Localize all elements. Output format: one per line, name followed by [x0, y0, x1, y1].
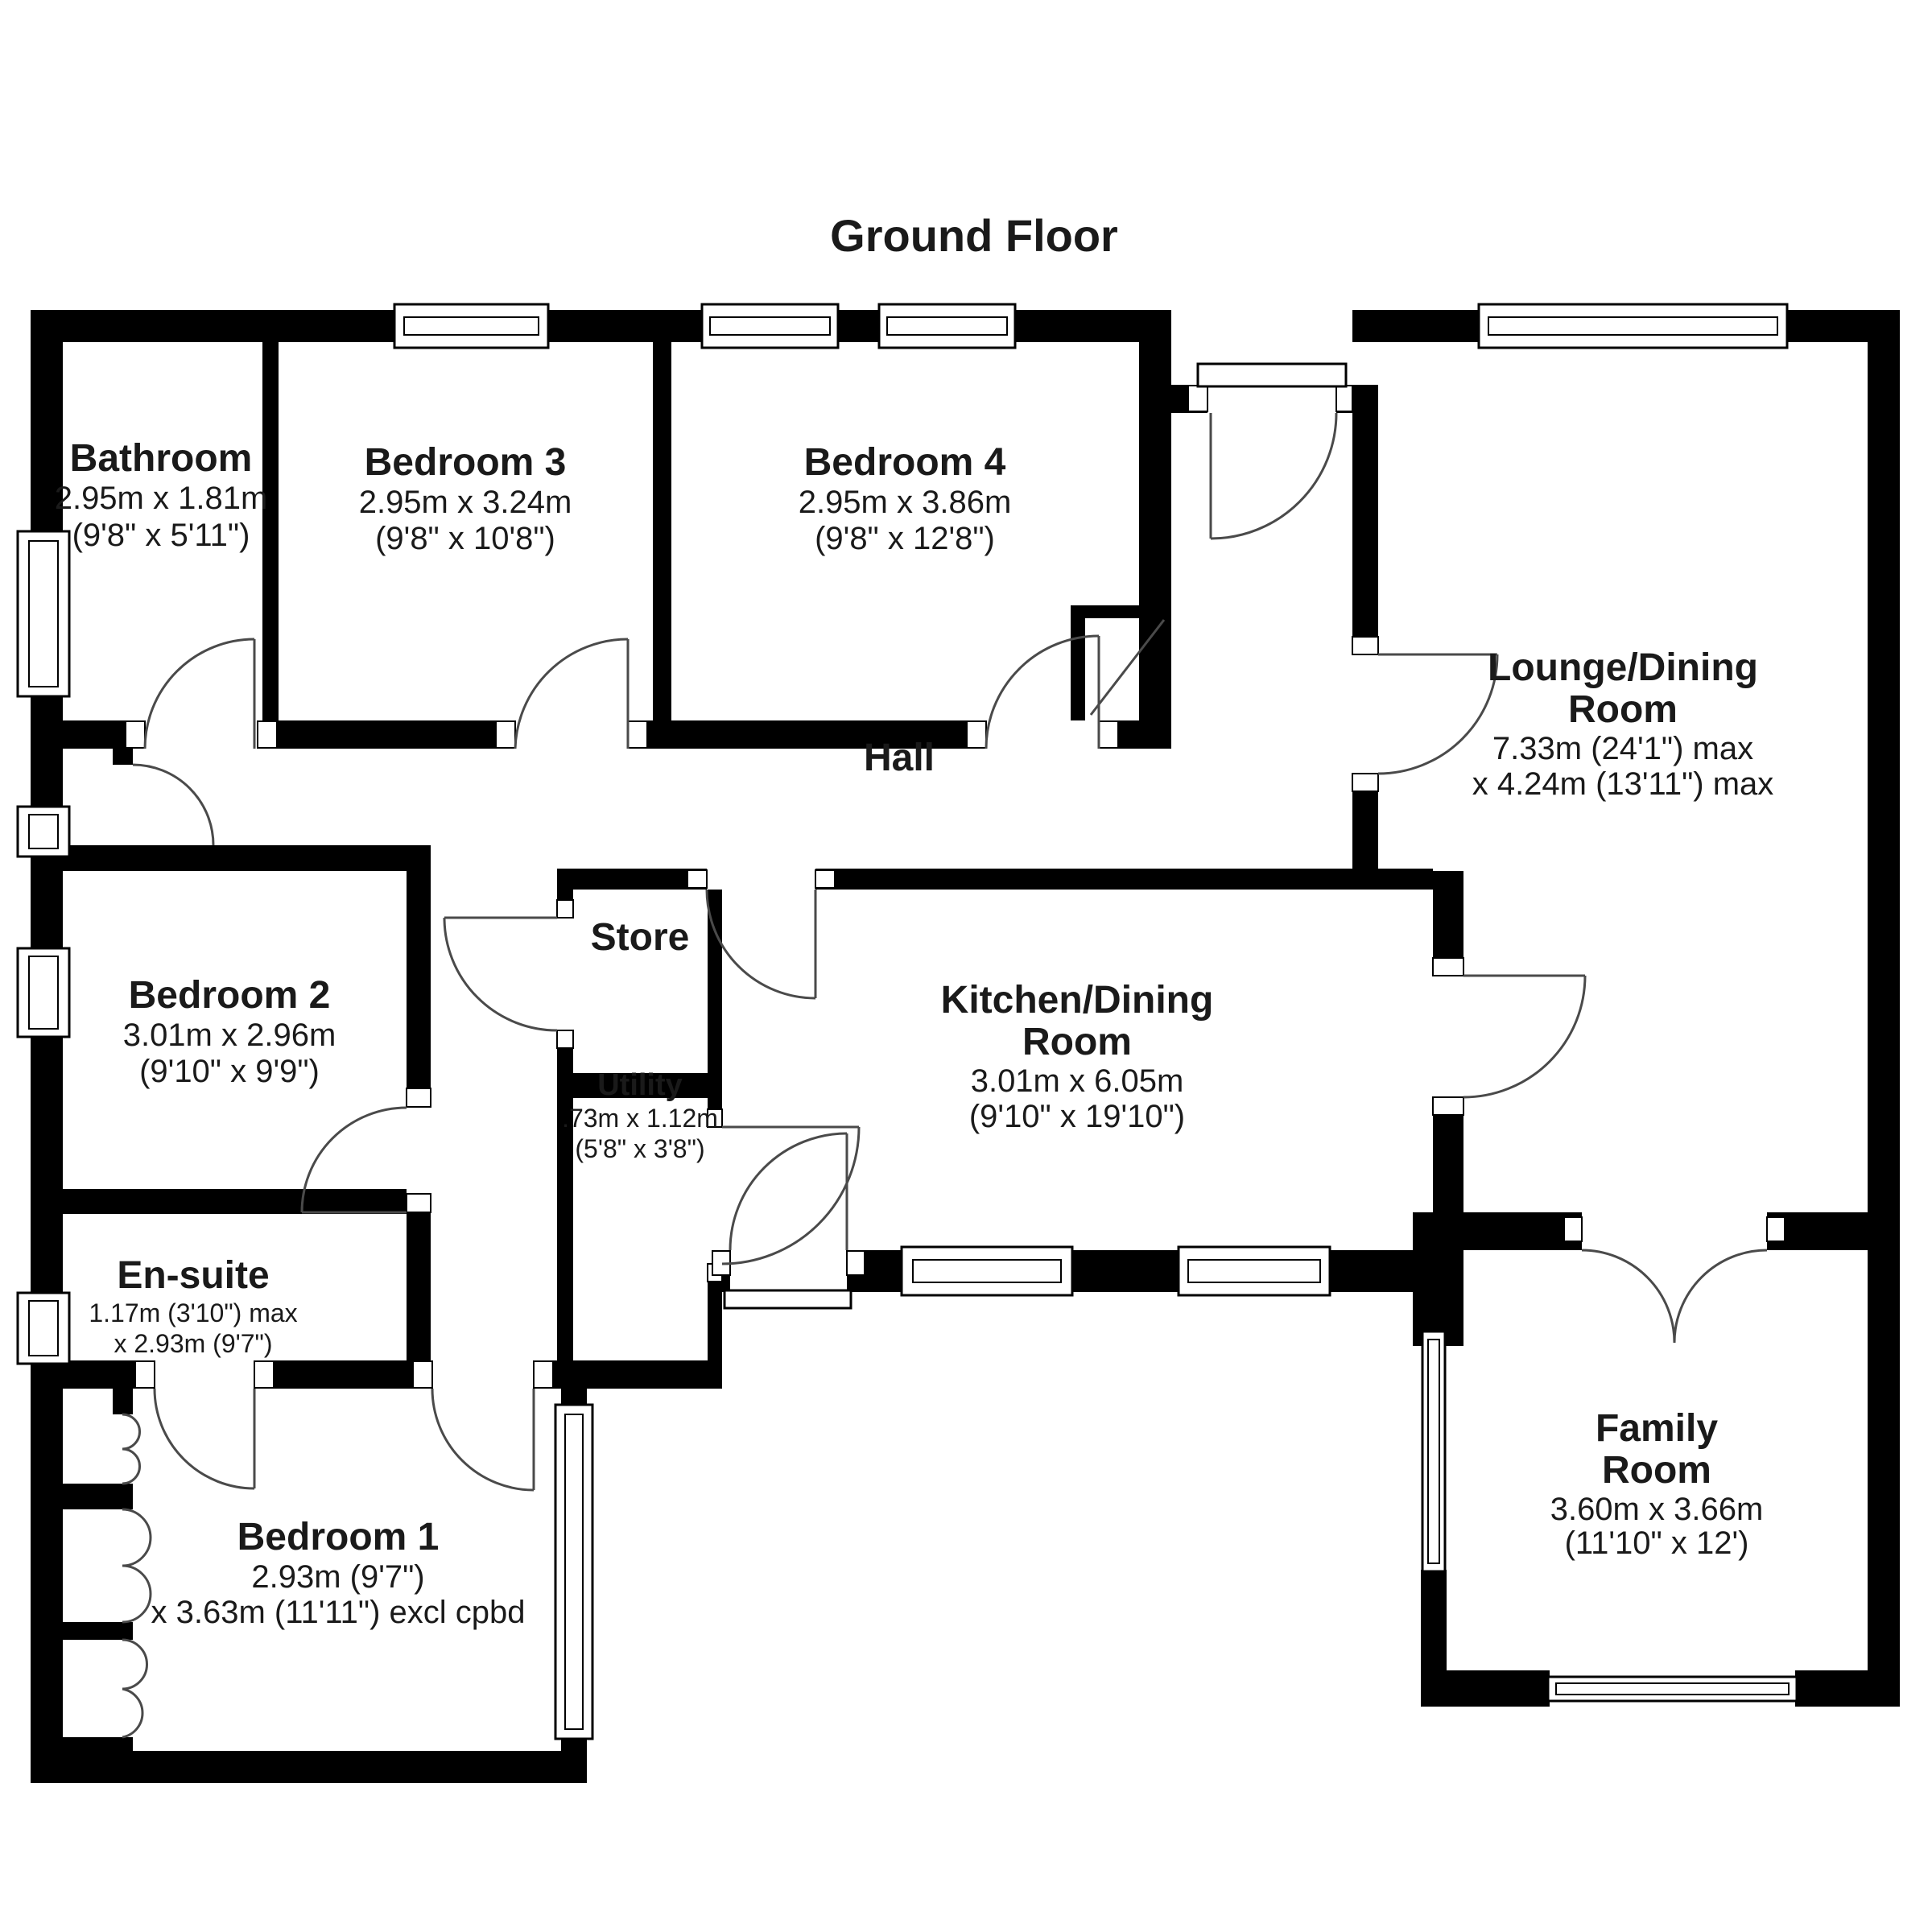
bedroom1-name: Bedroom 1 [237, 1516, 440, 1558]
store-label: Store [591, 916, 690, 959]
family-room-side-window [1422, 1331, 1445, 1571]
bedroom4-window-1 [702, 304, 838, 348]
bedroom2-dims-2: (9'10" x 9'9") [139, 1054, 320, 1089]
kitchen-window-2 [1179, 1247, 1330, 1295]
bathroom-dims-2: (9'8" x 5'11") [72, 518, 250, 553]
bedroom4-name: Bedroom 4 [804, 441, 1006, 484]
bathroom-label: Bathroom 2.95m x 1.81m (9'8" x 5'11") [55, 437, 268, 553]
family-dims-2: (11'10" x 12') [1565, 1525, 1749, 1561]
bedroom4-dims-2: (9'8" x 12'8") [815, 521, 995, 556]
bedroom4-label: Bedroom 4 2.95m x 3.86m (9'8" x 12'8") [799, 441, 1012, 556]
bathroom-dims-1: 2.95m x 1.81m [55, 481, 268, 516]
ensuite-dims-1: 1.17m (3'10") max [89, 1298, 297, 1327]
bedroom3-dims-2: (9'8" x 10'8") [375, 521, 555, 556]
front-door [1211, 413, 1336, 539]
bathroom-name: Bathroom [70, 437, 253, 480]
ensuite-name: En-suite [117, 1254, 269, 1297]
utility-name: Utility [597, 1068, 683, 1102]
kitchen-name-1: Kitchen/Dining [941, 979, 1214, 1022]
kitchen-lounge-door [1463, 976, 1585, 1097]
bedroom1-dims-1: 2.93m (9'7") [251, 1559, 424, 1595]
bedroom2-dims-1: 3.01m x 2.96m [123, 1018, 336, 1053]
family-room-bottom-window [1548, 1677, 1797, 1701]
labels: Ground Floor Bathroom 2.95m x 1.81m (9'8… [55, 210, 1774, 1630]
bedroom4-window-2 [879, 304, 1015, 348]
kitchen-hall-door [707, 890, 815, 998]
lounge-door [1378, 654, 1497, 774]
hall-label: Hall [864, 737, 935, 779]
bathroom-window [18, 531, 69, 696]
bedroom2-window [18, 948, 69, 1037]
hall-cupboard-door [133, 765, 213, 845]
kitchen-dims-1: 3.01m x 6.05m [971, 1063, 1184, 1099]
bathroom-door [145, 639, 254, 749]
ensuite-window [18, 1293, 69, 1364]
family-room-label: Family Room 3.60m x 3.66m (11'10" x 12') [1550, 1407, 1764, 1561]
lounge-dims-1: 7.33m (24'1") max [1492, 731, 1753, 766]
lounge-name-1: Lounge/Dining [1488, 646, 1758, 689]
lounge-window [1479, 304, 1787, 348]
family-name-1: Family [1596, 1407, 1718, 1450]
bedroom1-window [555, 1405, 592, 1739]
bedroom3-name: Bedroom 3 [365, 441, 567, 484]
kitchen-name-2: Room [1022, 1021, 1132, 1063]
bedroom3-label: Bedroom 3 2.95m x 3.24m (9'8" x 10'8") [359, 441, 572, 556]
lounge-dims-2: x 4.24m (13'11") max [1472, 766, 1774, 802]
bedroom3-window [394, 304, 548, 348]
hall-window [18, 807, 69, 857]
floor-plan: Ground Floor Bathroom 2.95m x 1.81m (9'8… [0, 0, 1932, 1932]
back-door [730, 1133, 847, 1250]
family-name-2: Room [1602, 1449, 1711, 1492]
utility-dims-2: (5'8" x 3'8") [575, 1134, 704, 1163]
lounge-label: Lounge/Dining Room 7.33m (24'1") max x 4… [1472, 646, 1774, 802]
kitchen-dims-2: (9'10" x 19'10") [969, 1099, 1185, 1134]
family-dims-1: 3.60m x 3.66m [1550, 1492, 1764, 1527]
front-door-threshold [1198, 364, 1346, 386]
ensuite-dims-2: x 2.93m (9'7") [114, 1329, 272, 1358]
utility-dims-1: .73m x 1.12m [562, 1104, 718, 1133]
ensuite-door [155, 1389, 254, 1488]
bedroom2-label: Bedroom 2 3.01m x 2.96m (9'10" x 9'9") [123, 974, 336, 1089]
bedroom1-cupboard-bifold-doors [122, 1414, 151, 1737]
bedroom1-dims-2: x 3.63m (11'11") excl cpbd [151, 1595, 525, 1630]
kitchen-label: Kitchen/Dining Room 3.01m x 6.05m (9'10"… [941, 979, 1214, 1134]
lounge-name-2: Room [1568, 688, 1678, 731]
bedroom3-door [515, 639, 628, 749]
ensuite-label: En-suite 1.17m (3'10") max x 2.93m (9'7"… [89, 1254, 297, 1358]
family-room-double-doors [1582, 1250, 1767, 1343]
bedroom2-name: Bedroom 2 [129, 974, 331, 1017]
bedroom1-label: Bedroom 1 2.93m (9'7") x 3.63m (11'11") … [151, 1516, 525, 1630]
bedroom4-dims-1: 2.95m x 3.86m [799, 485, 1012, 520]
bedroom3-dims-1: 2.95m x 3.24m [359, 485, 572, 520]
bedroom1-door [432, 1389, 534, 1490]
back-door-threshold [724, 1290, 851, 1308]
store-door [444, 918, 557, 1030]
kitchen-window-1 [902, 1247, 1072, 1295]
page-title: Ground Floor [830, 210, 1118, 261]
